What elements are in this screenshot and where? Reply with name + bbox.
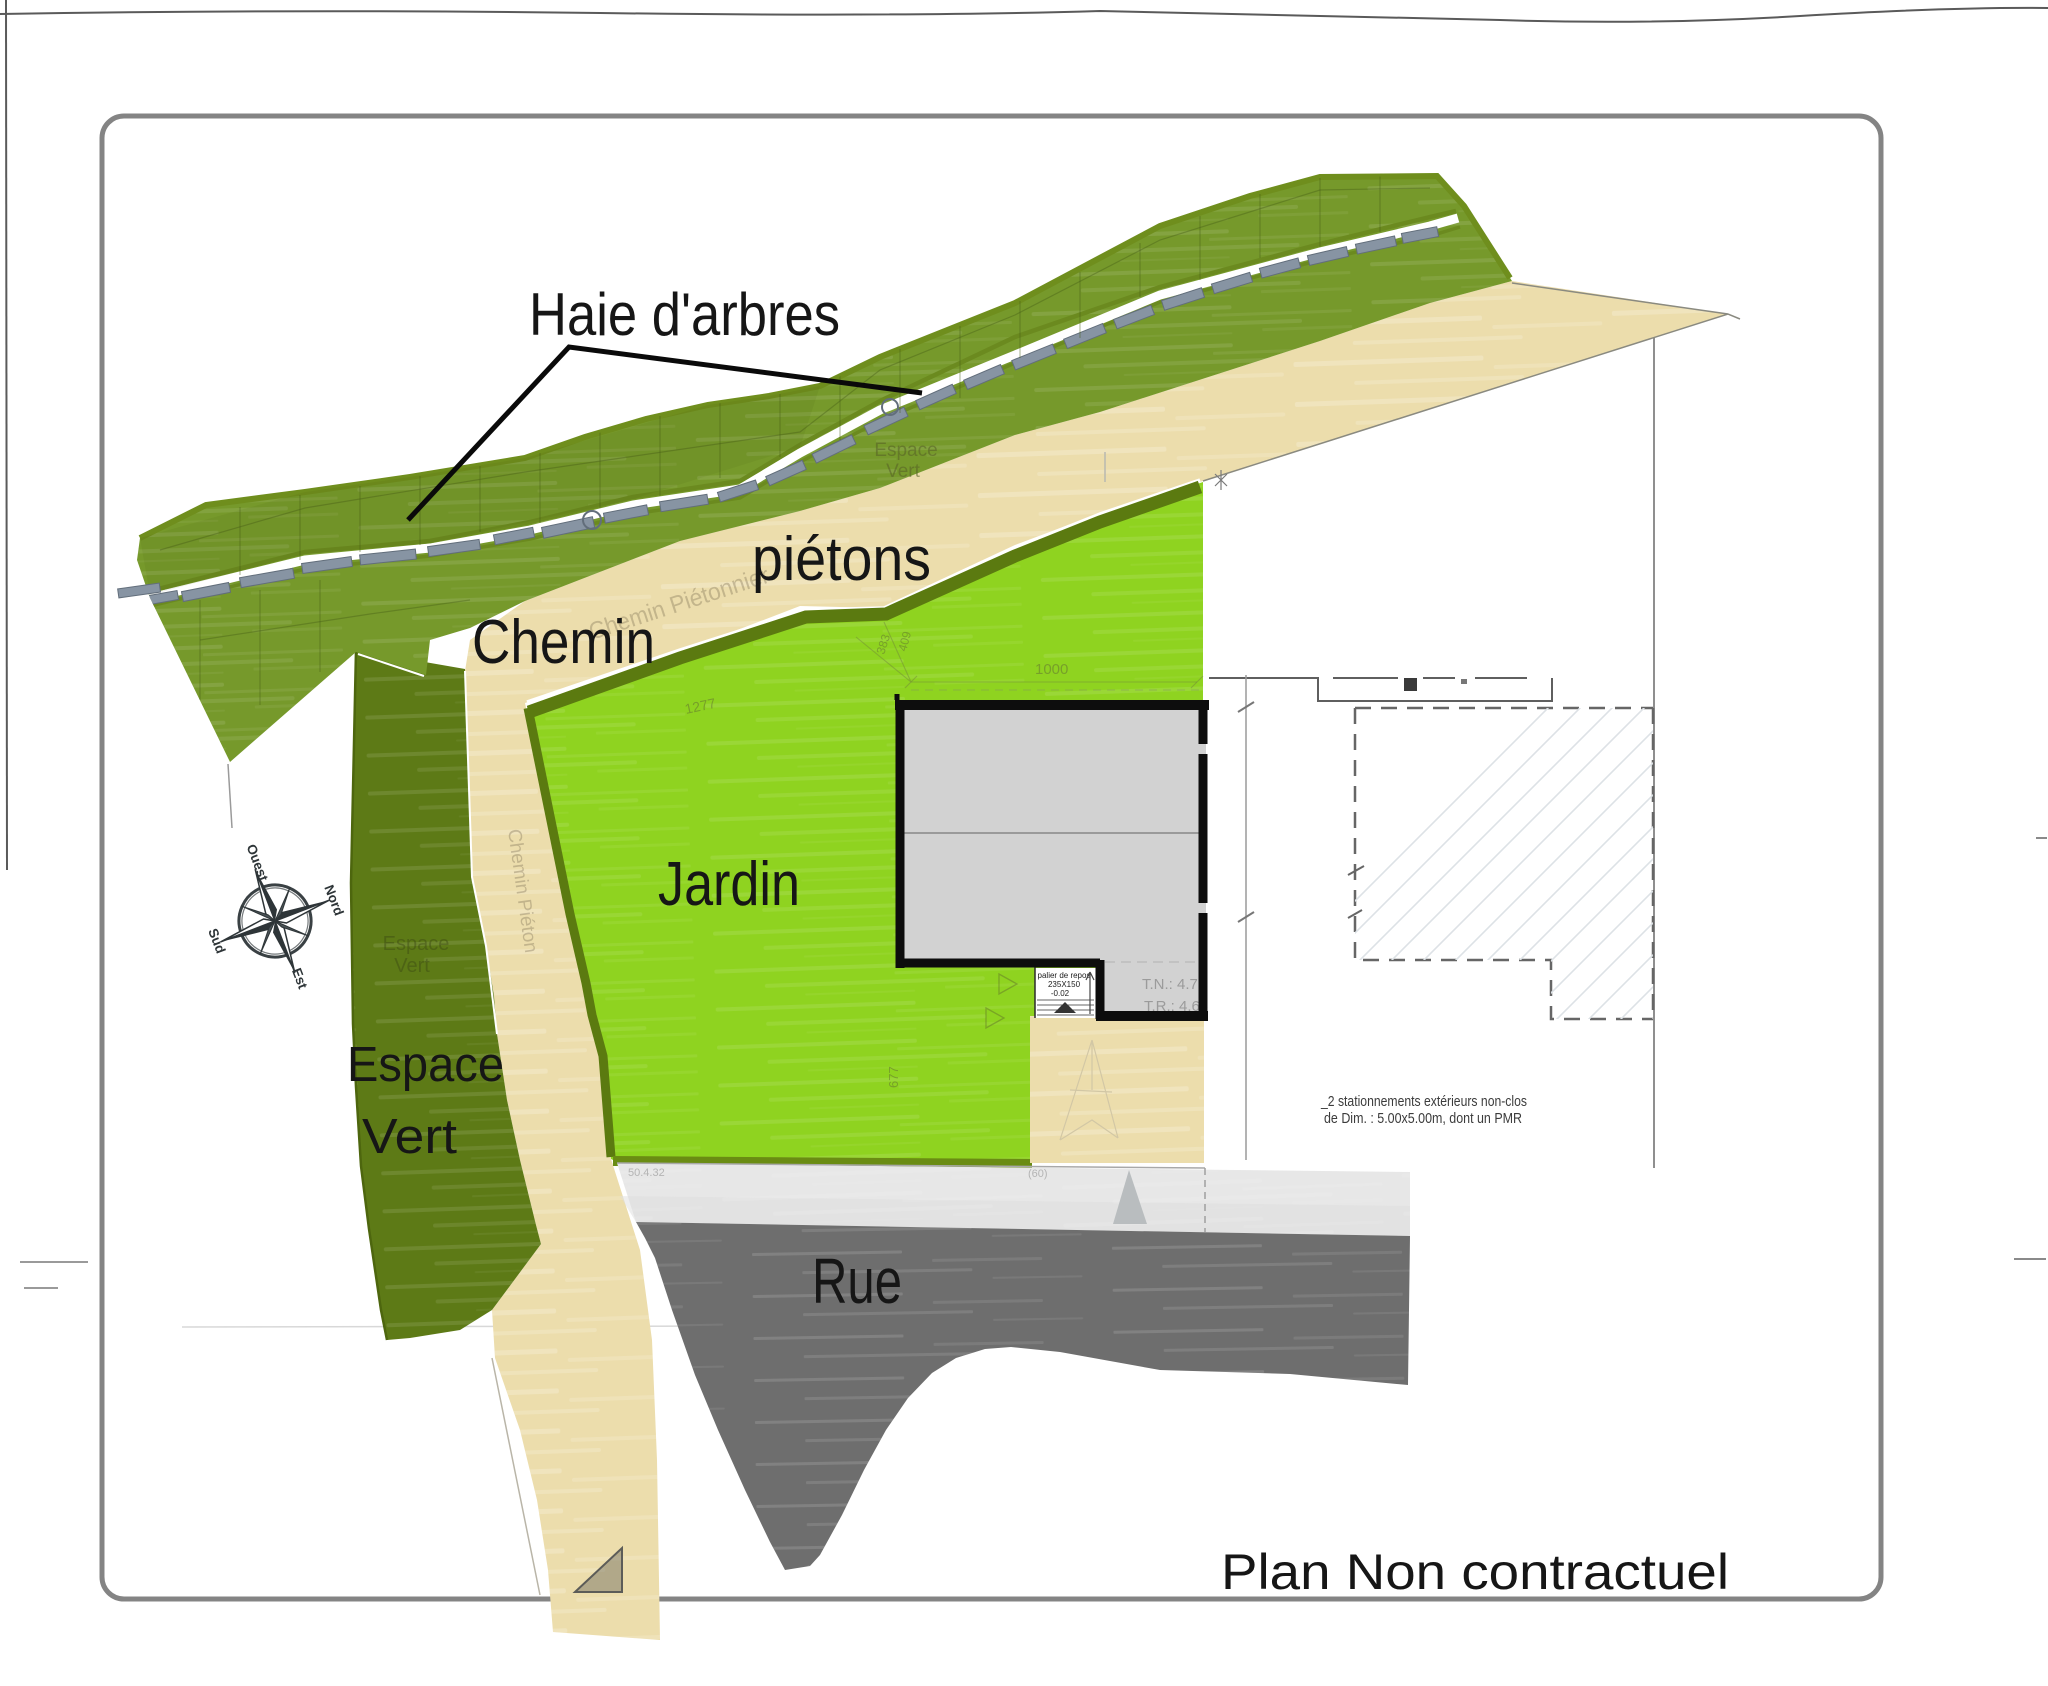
svg-text:235X150: 235X150 (1048, 980, 1081, 989)
svg-text:Plan Non contractuel: Plan Non contractuel (1221, 1544, 1729, 1600)
svg-text:Espace: Espace (347, 1038, 504, 1092)
svg-text:1000: 1000 (1035, 661, 1068, 678)
svg-text:Rue: Rue (812, 1245, 902, 1317)
svg-text:piétons: piétons (752, 525, 931, 594)
svg-text:50.4.32: 50.4.32 (628, 1167, 665, 1179)
svg-text:_2 stationnements extérieurs n: _2 stationnements extérieurs non-clos (1320, 1093, 1527, 1110)
svg-text:Espace: Espace (874, 440, 937, 461)
svg-text:Vert: Vert (362, 1110, 457, 1164)
svg-text:Chemin: Chemin (472, 608, 655, 677)
svg-text:-0.02: -0.02 (1051, 989, 1070, 998)
svg-text:(60): (60) (1028, 1168, 1048, 1180)
svg-text:de Dim. : 5.00x5.00m, dont un: de Dim. : 5.00x5.00m, dont un PMR (1324, 1110, 1522, 1127)
svg-text:T.N.: 4.75: T.N.: 4.75 (1142, 976, 1206, 993)
svg-text:Jardin: Jardin (658, 850, 800, 919)
svg-text:Espace: Espace (383, 933, 450, 955)
svg-text:Vert: Vert (886, 461, 921, 482)
svg-text:Vert: Vert (394, 955, 430, 977)
svg-text:Haie d'arbres: Haie d'arbres (529, 281, 840, 348)
svg-text:677: 677 (886, 1066, 901, 1088)
svg-text:palier de repos: palier de repos (1038, 971, 1091, 980)
